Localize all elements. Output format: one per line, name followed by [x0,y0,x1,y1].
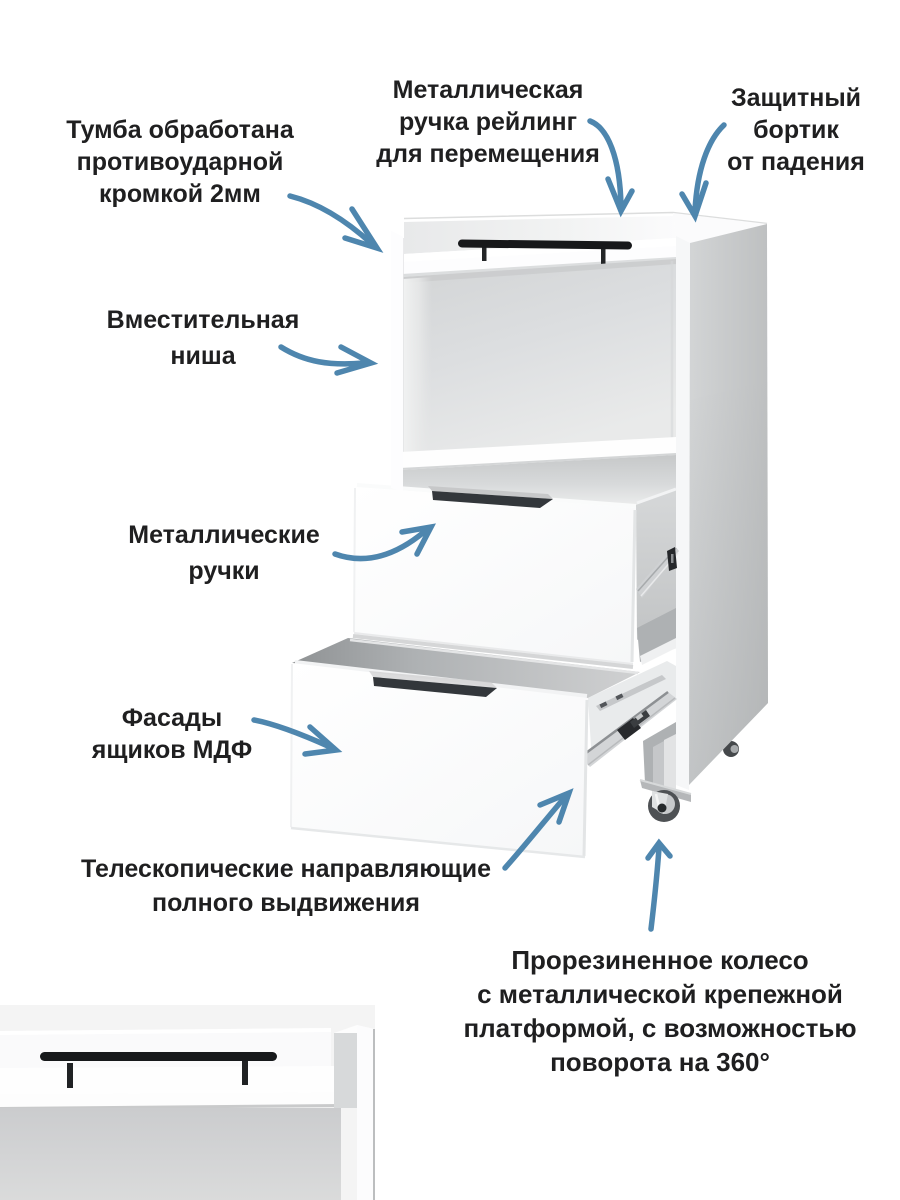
svg-text:полного выдвижения: полного выдвижения [152,889,420,917]
svg-text:Прорезиненное колесо: Прорезиненное колесо [511,945,808,975]
svg-text:ручки: ручки [188,557,259,585]
svg-text:противоударной: противоударной [77,148,284,176]
svg-text:платформой, с возможностью: платформой, с возможностью [463,1013,856,1043]
svg-text:кромкой 2мм: кромкой 2мм [99,180,261,208]
svg-text:Вместительная: Вместительная [107,306,300,334]
svg-text:Тумба обработана: Тумба обработана [66,116,295,144]
svg-text:Металлическая: Металлическая [393,76,584,104]
svg-text:ручка рейлинг: ручка рейлинг [399,108,577,136]
svg-text:Защитный: Защитный [731,84,861,112]
svg-text:бортик: бортик [753,116,839,144]
svg-text:ящиков МДФ: ящиков МДФ [91,736,252,764]
svg-text:ниша: ниша [170,342,236,370]
svg-text:с металлической крепежной: с металлической крепежной [477,979,843,1009]
svg-text:Телескопические направляющие: Телескопические направляющие [81,855,491,883]
svg-text:Металлические: Металлические [128,521,320,549]
svg-text:Фасады: Фасады [122,704,223,732]
svg-text:поворота на 360°: поворота на 360° [550,1047,770,1077]
svg-text:для перемещения: для перемещения [376,140,600,168]
svg-text:от падения: от падения [727,148,865,176]
